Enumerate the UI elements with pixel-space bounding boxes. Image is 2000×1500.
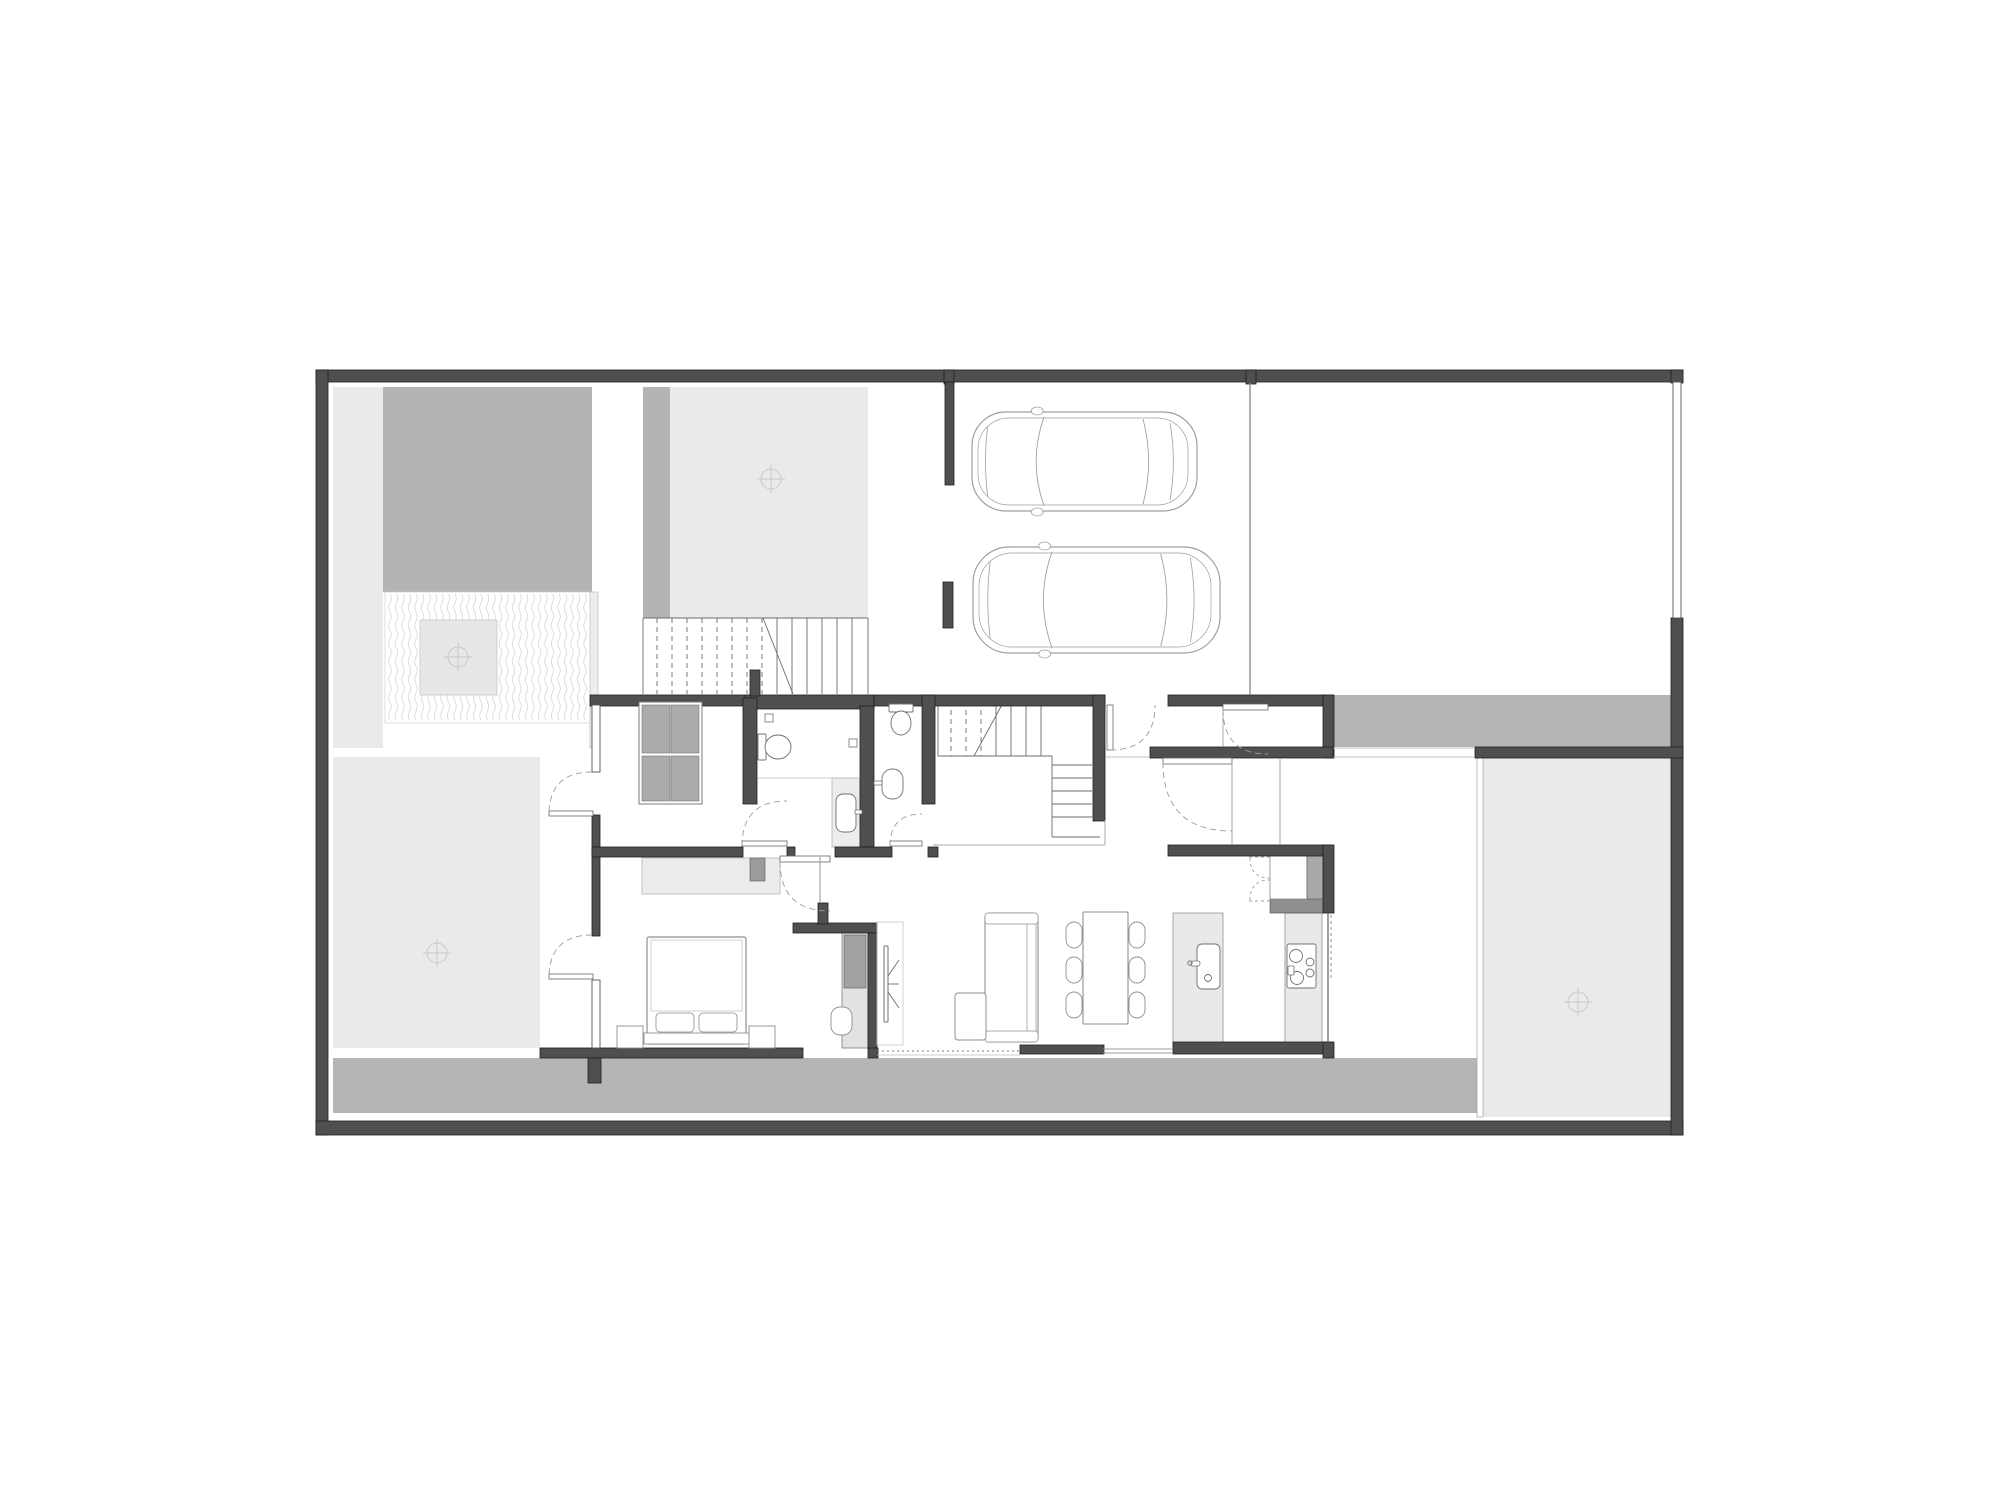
dining-table <box>1083 912 1128 1024</box>
wall-int-top-bath <box>745 695 874 709</box>
door-leaf-corridor <box>1163 758 1232 764</box>
bath1-faucet <box>855 810 862 814</box>
cooktop-knob <box>1288 966 1294 975</box>
bath1-sink <box>836 794 856 832</box>
tv-screen <box>884 946 888 1022</box>
pantry-arc-2 <box>1250 880 1270 900</box>
door-leaf-west-b <box>549 974 593 979</box>
toilet1-bowl <box>765 735 791 759</box>
entry-court <box>670 387 868 618</box>
door-leaf-closet <box>1223 704 1268 710</box>
wall-bath2-east <box>922 695 935 804</box>
window-bedroom-2 <box>592 980 600 1048</box>
patio-right <box>1483 758 1673 1117</box>
bed-pillow <box>656 1013 694 1032</box>
wall-slide-block <box>868 1048 878 1058</box>
toilet2-bowl <box>891 711 911 735</box>
door-leaf-front <box>1107 705 1113 750</box>
floor-plan <box>0 0 2000 1500</box>
bed-pillow <box>699 1013 737 1032</box>
wall-kitchen-col-s <box>1323 1042 1334 1058</box>
sofa-armrest <box>985 1031 1038 1042</box>
wall-outer-top <box>316 370 1683 382</box>
wall-tv-partition <box>868 933 877 1049</box>
island-sink <box>1197 944 1220 989</box>
shower-niche <box>849 739 857 747</box>
main-stair-cut <box>974 701 1004 756</box>
dining-chair <box>1129 992 1145 1018</box>
wall-living-south <box>1020 1045 1104 1054</box>
wall-corridor-north-2 <box>1475 747 1683 758</box>
wall-outer-right-corner <box>1671 370 1683 383</box>
wall-bath1-east <box>860 706 874 847</box>
wall-outer-left <box>316 370 328 1135</box>
door-arc-bath1 <box>742 801 787 846</box>
tv-leg <box>888 992 899 1008</box>
threshold-bath1 <box>742 841 787 846</box>
terrace-lower <box>333 1058 1483 1113</box>
window-right-facade <box>1673 382 1681 618</box>
bedroom-chair <box>831 1007 852 1035</box>
side-strip-left <box>333 387 383 748</box>
nightstand <box>749 1026 775 1048</box>
tv-area-outline <box>877 922 903 1045</box>
wall-corridor-south-2 <box>787 847 795 857</box>
door-arc-west-a <box>549 772 592 815</box>
car-2-mirror <box>1039 542 1051 550</box>
sofa-armrest <box>985 913 1038 924</box>
tv-leg <box>888 960 899 976</box>
door-leaf-west-a <box>549 811 593 816</box>
dining-chair <box>1066 992 1082 1018</box>
terrace-upper <box>1333 695 1673 747</box>
dining-chair <box>1129 922 1145 948</box>
car-2 <box>973 547 1220 653</box>
wall-garage-stub <box>945 382 954 485</box>
shower-drain <box>765 714 773 722</box>
wardrobe-panel <box>671 705 699 753</box>
dining-chair <box>1066 922 1082 948</box>
wall-corridor-south-1 <box>592 847 743 857</box>
pantry-block <box>1307 855 1323 899</box>
wall-kitchen-north <box>1168 845 1330 856</box>
wall-outer-right <box>1671 618 1683 1135</box>
court-strip <box>643 387 670 618</box>
door-leaf-bedroom <box>780 856 830 862</box>
car-1-mirror <box>1031 508 1043 516</box>
wall-stair-east <box>1093 695 1105 821</box>
patio-left <box>333 757 540 1048</box>
pantry-arc-1 <box>1250 858 1270 878</box>
wall-corridor-south-3 <box>835 847 892 857</box>
wall-outer-bottom <box>316 1121 1683 1135</box>
desk-stool <box>750 858 765 881</box>
wall-kitchen-south <box>1173 1042 1331 1054</box>
wardrobe-panel <box>642 756 670 801</box>
nightstand <box>617 1026 643 1048</box>
wall-L-stub <box>818 903 828 924</box>
wall-bedroom-stub <box>588 1058 601 1083</box>
wall-bedroom-west <box>592 815 600 936</box>
door-arc-corridor <box>1163 762 1232 831</box>
wall-L-horizontal <box>793 923 877 933</box>
bed-headboard <box>644 1033 749 1044</box>
sofa-back <box>1027 917 1036 1035</box>
garden-court <box>383 387 592 592</box>
dining-chair <box>1129 957 1145 983</box>
column-top-2 <box>1246 370 1256 384</box>
wardrobe-panel <box>642 705 670 753</box>
car-1-mirror <box>1031 407 1043 415</box>
door-arc-west-b <box>549 935 592 978</box>
pantry-niche <box>1270 855 1307 899</box>
door-arc-front <box>1110 705 1155 750</box>
wall-corridor-south-4 <box>928 847 938 857</box>
wall-entry-jamb <box>750 670 760 696</box>
floor-plan-svg <box>0 0 2000 1500</box>
service-yard-strip <box>1477 757 1483 1117</box>
sofa-chaise <box>955 993 986 1040</box>
wall-garage-stop <box>943 582 953 628</box>
wall-kitchen-col-n <box>1323 845 1334 913</box>
threshold-bath2 <box>890 841 922 846</box>
wall-bath1-west <box>743 698 757 804</box>
wardrobe-panel <box>671 756 699 801</box>
bath2-faucet <box>874 781 882 785</box>
bath2-basin <box>882 769 903 799</box>
window-bedroom-1 <box>592 705 600 772</box>
car-2-mirror <box>1039 650 1051 658</box>
entry-stair-cut <box>763 618 793 694</box>
wall-bedroom-south <box>540 1048 803 1058</box>
car-1 <box>972 412 1197 511</box>
tv-unit-upper <box>844 935 866 988</box>
dining-chair <box>1066 957 1082 983</box>
